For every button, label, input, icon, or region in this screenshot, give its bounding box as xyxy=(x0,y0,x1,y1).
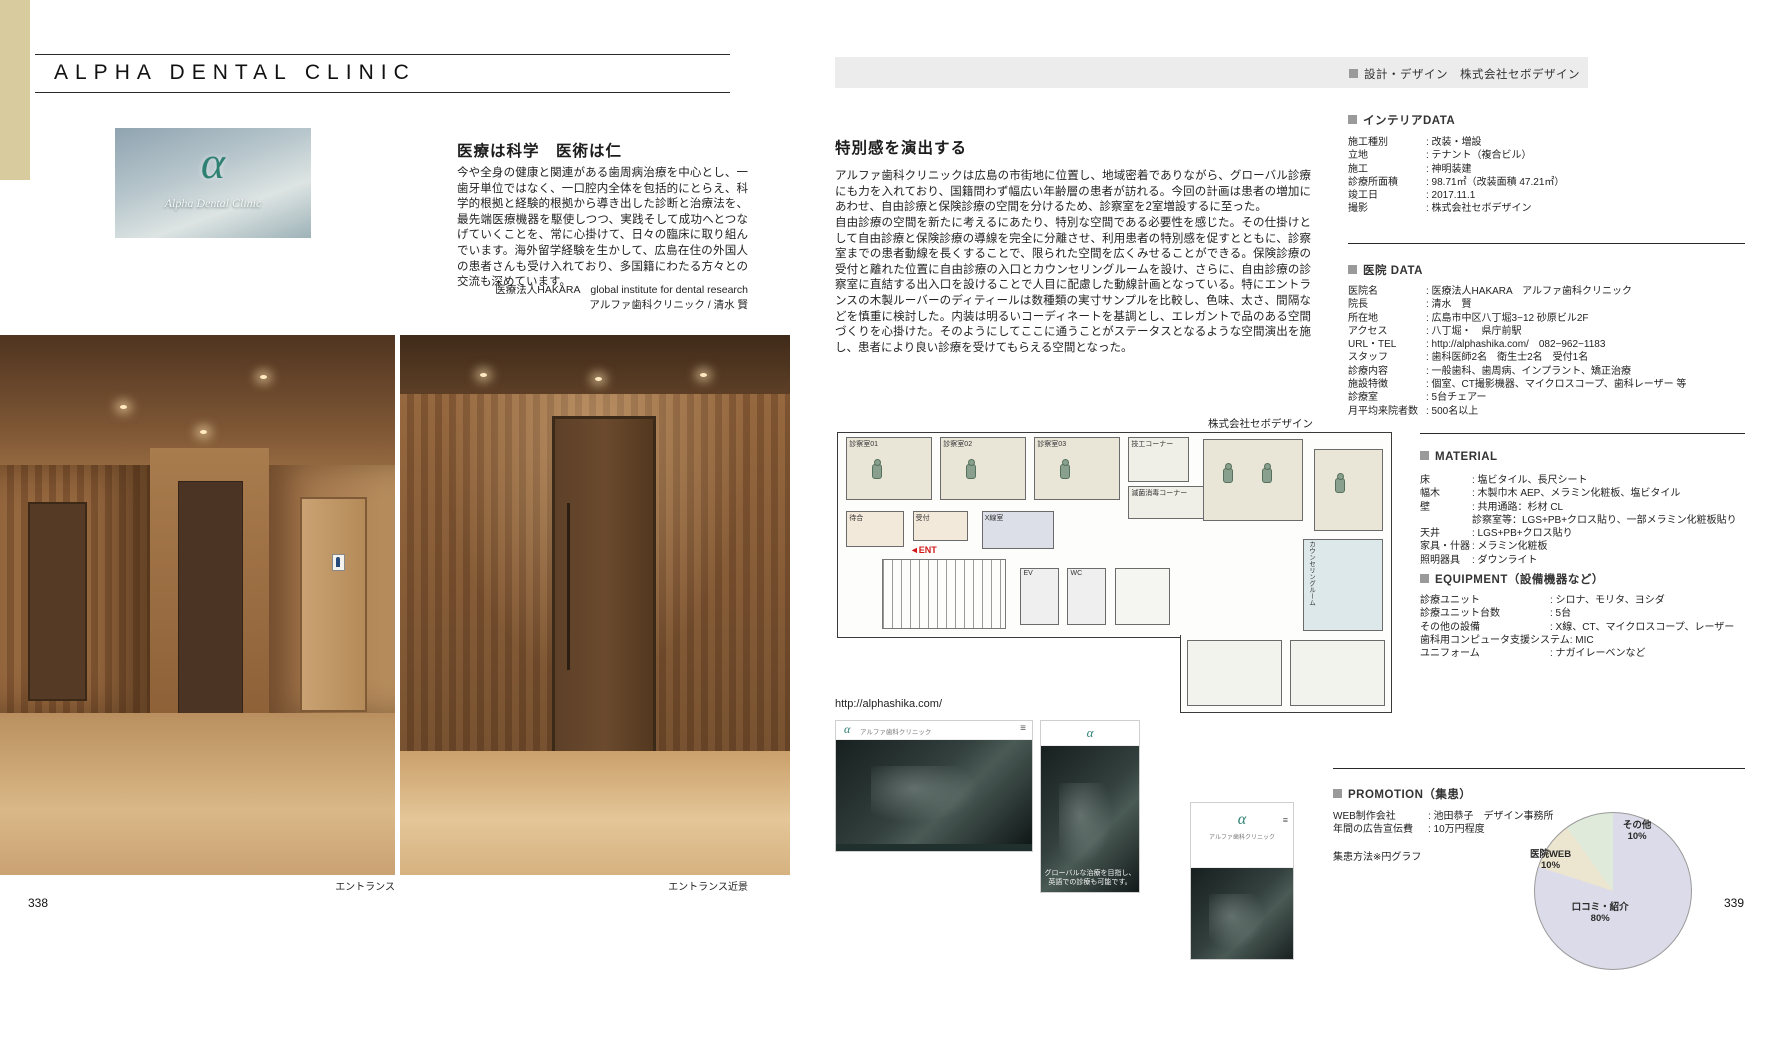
website-url: http://alphashika.com/ xyxy=(835,698,942,710)
corridor-side-door xyxy=(28,502,87,700)
divider xyxy=(1333,768,1745,769)
data-row: ユニフォーム: ナガイレーベンなど xyxy=(1420,647,1748,660)
design-credit-band: 設計・デザイン 株式会社セボデザイン xyxy=(835,57,1588,88)
site-logo-alpha-icon: α xyxy=(844,722,850,737)
photo1-caption: エントランス xyxy=(0,878,395,893)
data-row: アクセス: 八丁堀・ 県庁前駅 xyxy=(1348,325,1748,338)
data-row: 診療内容: 一般歯科、歯周病、インプラント、矯正治療 xyxy=(1348,365,1748,378)
magazine-spread: ALPHA DENTAL CLINIC α Alpha Dental Clini… xyxy=(0,0,1772,1063)
data-row: 照明器具: ダウンライト xyxy=(1420,554,1748,567)
article-credit: 株式会社セボデザイン xyxy=(835,417,1313,431)
downlight-icon xyxy=(700,373,707,377)
logo-script-text: Alpha Dental Clinic xyxy=(115,196,311,211)
data-row: その他の設備: X線、CT、マイクロスコープ、レーザー xyxy=(1420,621,1748,634)
entrance-marker: ◄ENT xyxy=(910,545,937,555)
data-row: 診療室: 5台チェアー xyxy=(1348,391,1748,404)
downlight-icon xyxy=(120,405,127,409)
plan-room-ext xyxy=(1290,640,1385,706)
plan-room-consult-free xyxy=(1203,439,1303,521)
downlight-icon xyxy=(480,373,487,377)
plan-room: 診察室02 xyxy=(940,437,1026,500)
dental-chair-icon xyxy=(1223,468,1233,483)
data-row: 診療所面積: 98.71㎡（改装面積 47.21㎡） xyxy=(1348,176,1748,189)
stairs xyxy=(882,559,1006,628)
article-paragraph-1: アルファ歯科クリニックは広島の市街地に位置し、地域密着でありながら、グローバル診… xyxy=(835,169,1311,216)
title-rule-top xyxy=(35,54,730,55)
data-row: 天井: LGS+PB+クロス貼り xyxy=(1420,527,1748,540)
square-bullet-icon xyxy=(1420,451,1429,460)
intro-credit-line1: 医療法人HAKARA global institute for dental r… xyxy=(457,283,748,297)
restroom-sign xyxy=(332,554,345,571)
plan-room: 診察室03 xyxy=(1034,437,1120,500)
data-row: 診療ユニット台数: 5台 xyxy=(1420,607,1748,620)
data-row: 診療ユニット: シロナ、モリタ、ヨシダ xyxy=(1420,594,1748,607)
card-brand-text: アルファ歯科クリニック xyxy=(1191,832,1293,841)
article-heading: 特別感を演出する xyxy=(835,136,967,158)
clinic-data-header: 医院 DATA xyxy=(1348,262,1423,278)
promotion-header: PROMOTION（集患） xyxy=(1333,786,1471,802)
page-number-left: 338 xyxy=(28,896,48,910)
entrance-arrow-icon: ◄ xyxy=(910,545,919,555)
equipment-rows: 診療ユニット: シロナ、モリタ、ヨシダ診療ユニット台数: 5台その他の設備: X… xyxy=(1420,594,1748,660)
pie-label-kuchikomi: 口コミ・紹介 80% xyxy=(1565,902,1635,924)
entrance-closeup-photo xyxy=(400,335,790,875)
dental-chair-icon xyxy=(966,464,976,479)
intro-body: 今や全身の健康と関連がある歯周病治療を中心とし、一歯牙単位ではなく、一口腔内全体… xyxy=(457,166,748,291)
square-bullet-icon xyxy=(1349,69,1358,78)
data-row: 施工種別: 改装・増設 xyxy=(1348,136,1748,149)
website-desktop-thumbnail: α アルファ歯科クリニック ≡ xyxy=(835,720,1033,852)
site-header: α アルファ歯科クリニック ≡ xyxy=(836,721,1032,740)
corridor-ceiling xyxy=(0,335,395,465)
data-row: 家具・什器: メラミン化粧板 xyxy=(1420,540,1748,553)
card-photo xyxy=(1191,868,1293,960)
pie-chart xyxy=(1534,812,1692,970)
website-card-thumbnail: α アルファ歯科クリニック ≡ xyxy=(1190,802,1294,960)
page-title: ALPHA DENTAL CLINIC xyxy=(54,61,416,85)
intro-credit-line2: アルファ歯科クリニック / 清水 賢 xyxy=(457,298,748,312)
floor-plan-extension xyxy=(1180,635,1392,713)
data-row: 撮影: 株式会社セボデザイン xyxy=(1348,202,1748,215)
design-credit: 設計・デザイン 株式会社セボデザイン xyxy=(1349,66,1580,82)
mobile-caption: グローバルな治療を目指し、 英語での診療も可能です。 xyxy=(1041,869,1139,887)
plan-room-consult-right xyxy=(1314,449,1383,531)
equipment-header: EQUIPMENT（設備機器など） xyxy=(1420,571,1604,587)
square-bullet-icon xyxy=(1420,574,1429,583)
data-row: 幅木: 木製巾木 AEP、メラミン化粧板、塩ビタイル xyxy=(1420,487,1748,500)
site-hero-photo xyxy=(836,740,1032,844)
mobile-header: α xyxy=(1041,721,1139,746)
door-handle xyxy=(567,503,570,670)
pie-label-web: 医院WEB 10% xyxy=(1522,849,1580,871)
interior-data-header: インテリアDATA xyxy=(1348,112,1455,128)
intro-heading: 医療は科学 医術は仁 xyxy=(457,139,622,161)
data-row: 施工: 神明装建 xyxy=(1348,163,1748,176)
corridor-far-door xyxy=(178,481,243,715)
downlight-icon xyxy=(260,375,267,379)
dental-chair-icon xyxy=(872,464,882,479)
entrance-photo xyxy=(0,335,395,875)
plan-room: EV xyxy=(1020,568,1059,625)
logo-alpha-glyph: α xyxy=(115,136,311,189)
data-row: 竣工日: 2017.11.1 xyxy=(1348,189,1748,202)
plan-room: WC xyxy=(1067,568,1106,625)
mobile-photo: グローバルな治療を目指し、 英語での診療も可能です。 xyxy=(1041,746,1139,893)
site-logo-alpha-icon: α xyxy=(1087,725,1094,740)
plan-room: 待合 xyxy=(846,511,904,548)
closeup-ceiling xyxy=(400,335,790,394)
divider xyxy=(1420,433,1745,434)
data-row: 立地: テナント（複合ビル） xyxy=(1348,149,1748,162)
card-header: α アルファ歯科クリニック ≡ xyxy=(1191,811,1293,868)
clinic-logo-photo: α Alpha Dental Clinic xyxy=(115,128,311,238)
data-row: スタッフ: 歯科医師2名 衛生士2名 受付1名 xyxy=(1348,351,1748,364)
dental-chair-icon xyxy=(1060,464,1070,479)
square-bullet-icon xyxy=(1348,265,1357,274)
plan-room: X線室 xyxy=(982,511,1054,550)
website-mobile-thumbnail: α グローバルな治療を目指し、 英語での診療も可能です。 xyxy=(1040,720,1140,893)
dental-chair-icon xyxy=(1262,468,1272,483)
restroom-pictogram-icon xyxy=(336,557,340,567)
site-footer-strip xyxy=(836,844,1032,852)
site-logo-alpha-icon: α xyxy=(1191,811,1293,829)
data-row: 所在地: 広島市中区八丁堀3−12 砂原ビル2F xyxy=(1348,312,1748,325)
patient-source-pie: その他 10% 医院WEB 10% 口コミ・紹介 80% xyxy=(1534,812,1690,968)
section-tab xyxy=(0,0,30,180)
menu-icon: ≡ xyxy=(1020,723,1026,734)
article-paragraph-2: 自由診療の空間を新たに考えるにあたり、特別な空間である必要性を感じた。その仕掛け… xyxy=(835,216,1311,356)
title-rule-bottom xyxy=(35,92,730,93)
divider xyxy=(1348,243,1745,244)
plan-room-storage xyxy=(1115,568,1170,625)
data-row: URL・TEL: http://alphashika.com/ 082−962−… xyxy=(1348,338,1748,351)
plan-room: 技工コーナー xyxy=(1128,437,1189,482)
photo2-caption: エントランス近景 xyxy=(400,878,748,893)
corridor-floor xyxy=(0,713,395,875)
dental-chair-icon xyxy=(1335,478,1345,493)
plan-room-ext xyxy=(1187,640,1282,706)
data-row: 床: 塩ビタイル、長尺シート xyxy=(1420,474,1748,487)
downlight-icon xyxy=(200,430,207,434)
square-bullet-icon xyxy=(1333,789,1342,798)
plan-room: 診察室01 xyxy=(846,437,932,500)
material-rows: 床: 塩ビタイル、長尺シート幅木: 木製巾木 AEP、メラミン化粧板、塩ビタイル… xyxy=(1420,474,1748,567)
clinic-data-rows: 医院名: 医療法人HAKARA アルファ歯科クリニック院長: 清水 賢所在地: … xyxy=(1348,285,1748,418)
data-row: 院長: 清水 賢 xyxy=(1348,298,1748,311)
plan-room: カウンセリングルーム xyxy=(1303,539,1383,631)
data-row: 歯科用コンピュータ支援システム: MIC xyxy=(1420,634,1748,647)
square-bullet-icon xyxy=(1348,115,1357,124)
wood-entrance-door xyxy=(552,416,656,757)
interior-data-rows: 施工種別: 改装・増設立地: テナント（複合ビル）施工: 神明装建診療所面積: … xyxy=(1348,136,1748,216)
promotion-note: 集患方法※円グラフ xyxy=(1333,848,1421,863)
downlight-icon xyxy=(595,377,602,381)
data-row: 医院名: 医療法人HAKARA アルファ歯科クリニック xyxy=(1348,285,1748,298)
floor-plan: 診察室01 診察室02 診察室03 技工コーナー 滅菌消毒コーナー 待合 受付 xyxy=(837,432,1392,638)
site-brand-text: アルファ歯科クリニック xyxy=(860,726,931,736)
pie-label-sonota: その他 10% xyxy=(1615,820,1659,842)
data-row: 月平均来院者数: 500名以上 xyxy=(1348,405,1748,418)
data-row: 施設特徴: 個室、CT撮影機器、マイクロスコープ、歯科レーザー 等 xyxy=(1348,378,1748,391)
closeup-floor xyxy=(400,751,790,875)
page-number-right: 339 xyxy=(1724,896,1744,910)
elevator-door xyxy=(300,497,367,712)
data-row: 壁: 共用通路：杉材 CL 診察室等：LGS+PB+クロス貼り、一部メラミン化粧… xyxy=(1420,501,1748,528)
plan-room: 受付 xyxy=(913,511,968,542)
material-header: MATERIAL xyxy=(1420,451,1498,463)
menu-icon: ≡ xyxy=(1283,815,1288,825)
